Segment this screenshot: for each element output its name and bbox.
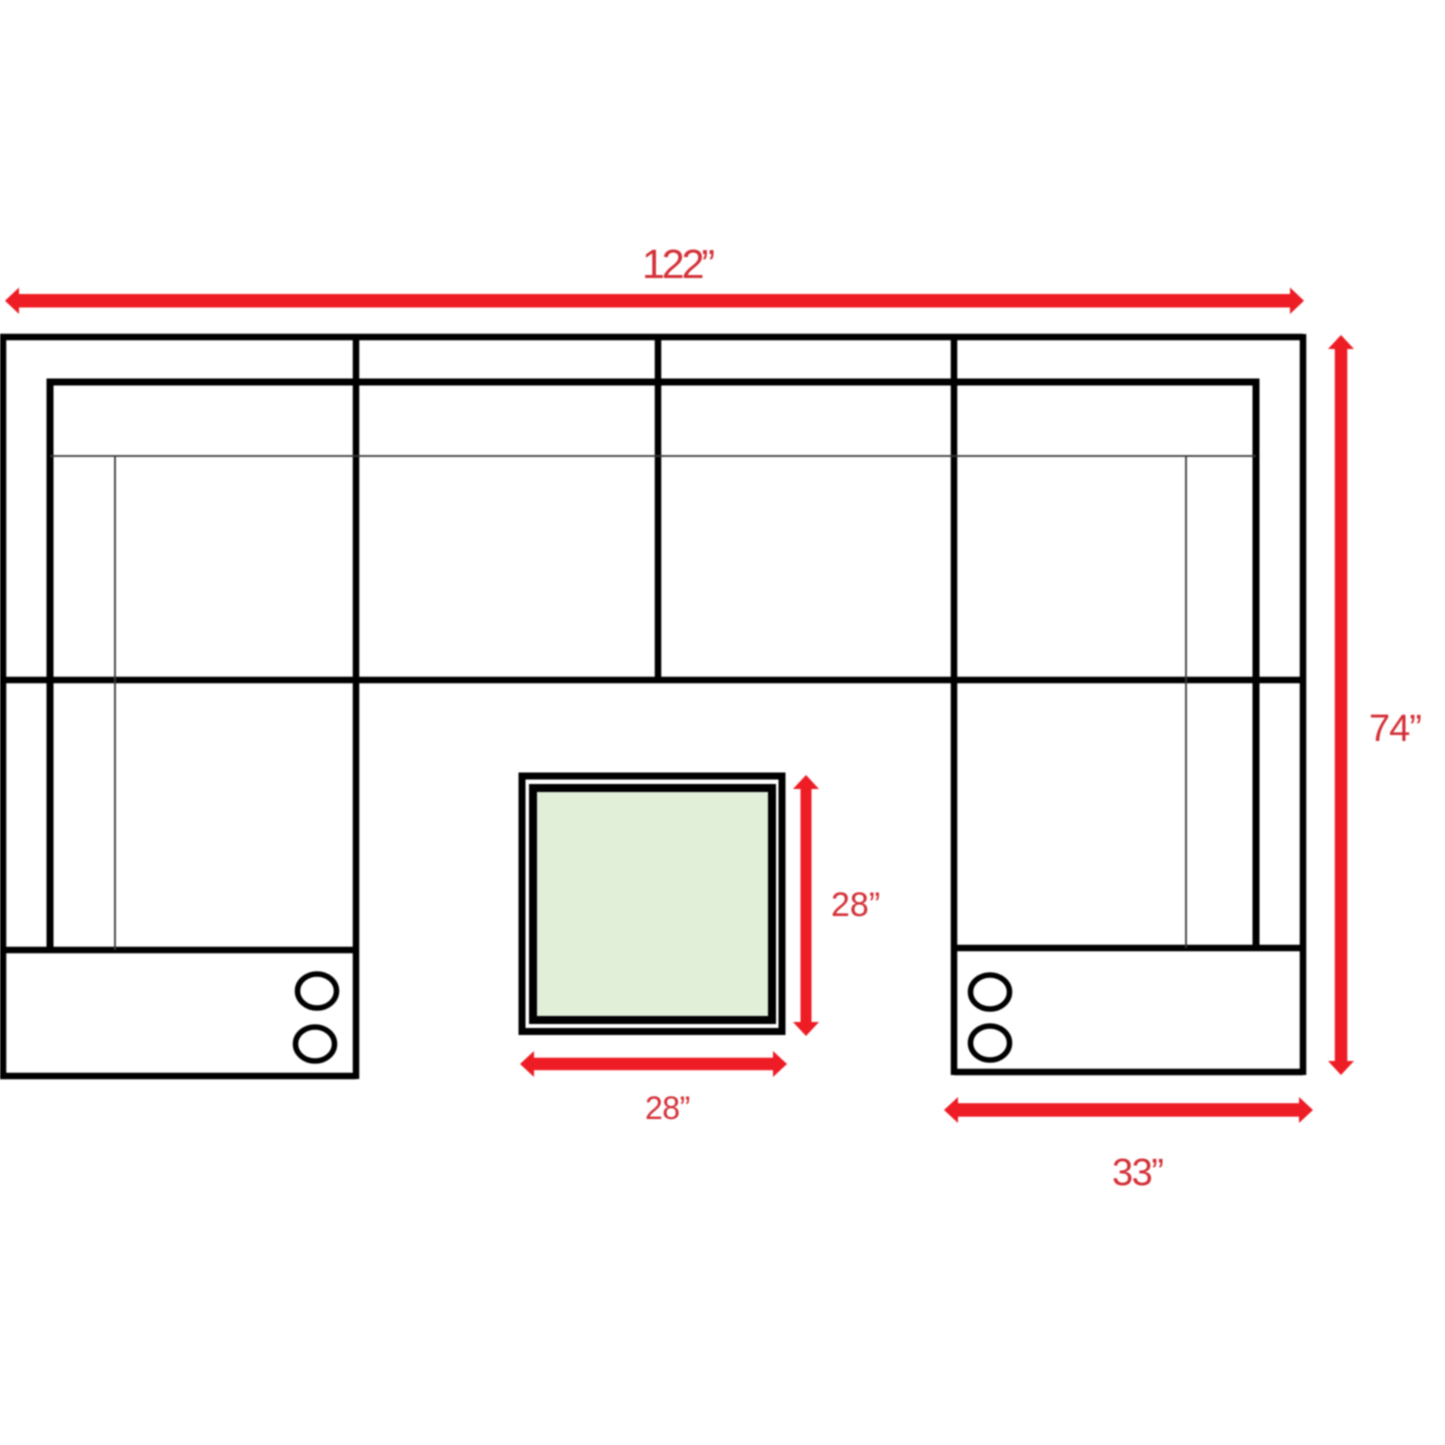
svg-text:74”: 74” [1369, 708, 1421, 750]
svg-text:28”: 28” [831, 886, 880, 924]
svg-text:28”: 28” [645, 1090, 690, 1126]
svg-text:33”: 33” [1112, 1152, 1163, 1194]
svg-text:122”: 122” [642, 241, 714, 287]
